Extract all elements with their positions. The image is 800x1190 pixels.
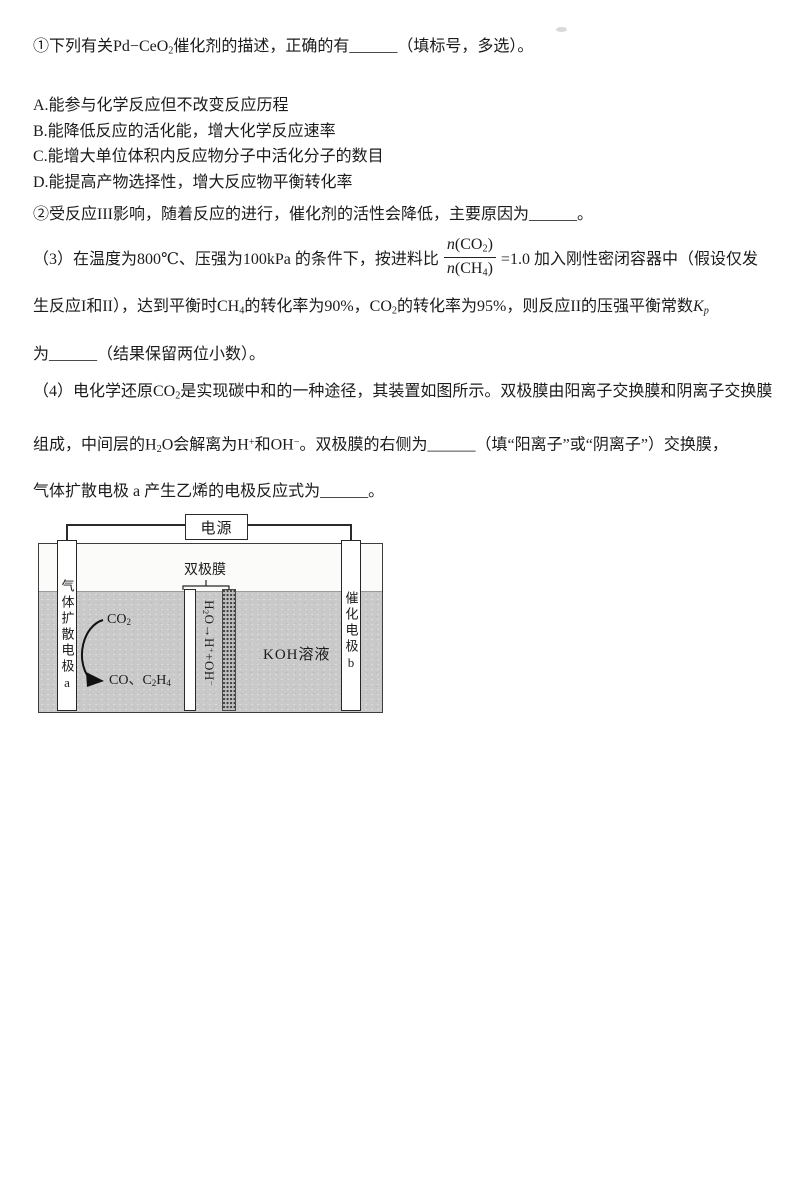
question-3-line-3: 为______（结果保留两位小数）。 [33, 343, 774, 366]
membrane-left-layer [184, 589, 196, 711]
q3-text2: =1.0 加入刚性密闭容器中（假设仅发 [501, 245, 758, 269]
co2-feed-label: CO2 [107, 612, 131, 628]
formula-oh: +OH [202, 653, 217, 681]
n-symbol: n [447, 260, 455, 277]
gas-diffusion-electrode-a: 气体扩散电极a [57, 540, 77, 711]
feed-ratio-fraction: n(CO2) n(CH4) [444, 236, 496, 278]
electro-cell-diagram: 电源 气体扩散电极a 催化电极b 双极膜 H2O→H++OH− KOH溶液 CO… [33, 509, 423, 724]
options-list: A.能参与化学反应但不改变反应历程 B.能降低反应的活化能，增大化学反应速率 C… [33, 93, 774, 195]
kp-sub: p [704, 305, 709, 316]
answer-blank: ______ [529, 206, 577, 223]
q4b-text3: 和OH [255, 437, 294, 454]
q3c-tail: （结果保留两位小数）。 [97, 346, 265, 363]
co2-text: CO [107, 612, 126, 627]
option-C: C.能增大单位体积内反应物分子中活化分子的数目 [33, 144, 774, 170]
fraction-numerator: n(CO2) [444, 236, 496, 258]
answer-blank: ______ [349, 38, 397, 55]
question-line-2: ②受反应III影响，随着反应的进行，催化剂的活性会降低，主要原因为______。 [33, 203, 774, 226]
catalytic-electrode-b: 催化电极b [341, 540, 361, 711]
products-text: CO、C [109, 673, 152, 688]
wire-right [248, 525, 351, 541]
q4-text2: 是实现碳中和的一种途径，其装置如图所示。双极膜由阳离子交换膜和阴离子交换膜 [180, 383, 772, 400]
co2-close: ) [488, 236, 493, 253]
power-supply-box: 电源 [185, 514, 248, 540]
q2-text: ②受反应III影响，随着反应的进行，催化剂的活性会降低，主要原因为 [33, 206, 529, 223]
membrane-right-layer [222, 589, 236, 711]
h4-sub: 4 [166, 678, 170, 688]
question-4-line-1: （4）电化学还原CO2是实现碳中和的一种途径，其装置如图所示。双极膜由阳离子交换… [33, 380, 774, 407]
scan-artifact [556, 27, 567, 32]
electrode-a-label: 气体扩散电极a [58, 579, 77, 693]
water-dissociation-formula: H2O→H++OH− [201, 600, 217, 686]
q1-text2: 催化剂的描述，正确的有 [173, 38, 349, 55]
q4b-text4: 。双极膜的右侧为 [300, 437, 428, 454]
fraction-denominator: n(CH4) [444, 258, 496, 279]
formula-h: H [202, 600, 217, 610]
ch4-open: (CH [455, 260, 483, 277]
q2-tail: 。 [577, 206, 593, 223]
ch4-close: ) [488, 260, 493, 277]
products-label: CO、C2H4 [109, 669, 171, 689]
q3b-text2: 的转化率为90%，CO [244, 298, 392, 315]
question-3-line-2: 生反应I和II），达到平衡时CH4的转化率为90%，CO2的转化率为95%，则反… [33, 295, 774, 322]
option-A: A.能参与化学反应但不改变反应历程 [33, 93, 774, 119]
q4-text: （4）电化学还原CO [33, 383, 175, 400]
question-4-line-3: 气体扩散电极 a 产生乙烯的电极反应式为______。 [33, 480, 774, 503]
bipolar-membrane-label: 双极膜 [175, 559, 235, 579]
electrode-b-label: 催化电极b [342, 591, 361, 673]
co2-open: (CO [455, 236, 483, 253]
formula-ohminus-sup: − [207, 681, 216, 686]
q3b-text3: 的转化率为95%，则反应II的压强平衡常数 [397, 298, 693, 315]
power-supply-label: 电源 [200, 517, 232, 538]
formula-arrow: O→H [202, 615, 217, 648]
q4b-text2: O会解离为H [162, 437, 249, 454]
question-line-1: ①下列有关Pd−CeO2催化剂的描述，正确的有______（填标号，多选）。 [33, 35, 774, 62]
q3-text: （3）在温度为800℃、压强为100kPa 的条件下，按进料比 [33, 245, 439, 269]
q3c-text: 为 [33, 346, 49, 363]
koh-solution-label: KOH溶液 [263, 643, 331, 664]
answer-blank: ______ [320, 483, 368, 500]
question-3-line: （3）在温度为800℃、压强为100kPa 的条件下，按进料比 n(CO2) n… [33, 236, 774, 278]
n-symbol: n [447, 236, 455, 253]
question-4-line-2: 组成，中间层的H2O会解离为H+和OH−。双极膜的右侧为______（填“阳离子… [33, 431, 774, 461]
q4b-text: 组成，中间层的H [33, 437, 157, 454]
exam-page: { "colors": { "text": "#1b1b1b", "liquid… [0, 0, 800, 1190]
kp-symbol: K [693, 298, 704, 315]
products-h: H [156, 673, 166, 688]
answer-blank: ______ [49, 346, 97, 363]
co2-sub: 2 [126, 617, 130, 627]
option-D: D.能提高产物选择性，增大反应物平衡转化率 [33, 170, 774, 196]
q3b-text: 生反应I和II），达到平衡时CH [33, 298, 239, 315]
q4c-tail: 。 [368, 483, 384, 500]
q4b-tail: （填“阳离子”或“阴离子”）交换膜， [476, 437, 728, 454]
catalyst-formula: Pd−CeO [113, 38, 168, 55]
q1-text: ①下列有关 [33, 38, 113, 55]
option-B: B.能降低反应的活化能，增大化学反应速率 [33, 119, 774, 145]
wire-left [67, 525, 185, 541]
answer-blank: ______ [428, 437, 476, 454]
q1-tail: （填标号，多选）。 [397, 38, 533, 55]
q4c-text: 气体扩散电极 a 产生乙烯的电极反应式为 [33, 483, 320, 500]
